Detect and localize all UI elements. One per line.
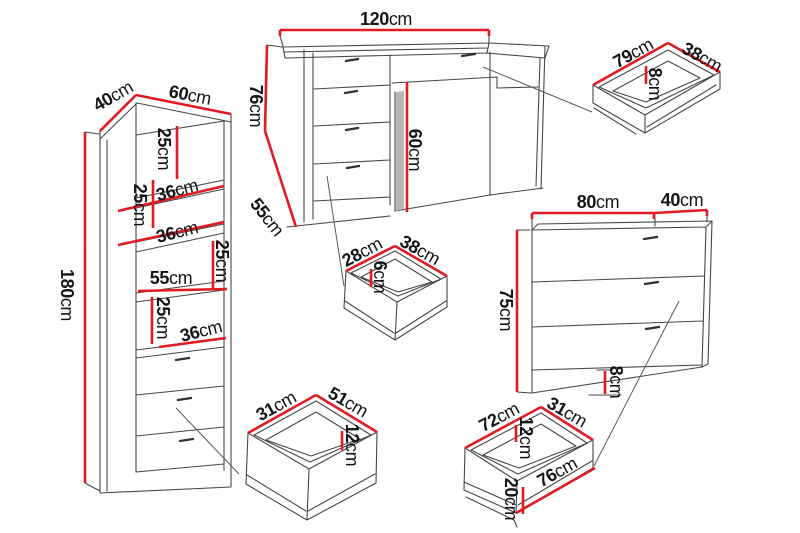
wardrobe-gap4-label: 25cm: [154, 297, 172, 339]
desk-height-label: 76cm: [247, 85, 265, 127]
chest-height-label: 75cm: [497, 289, 515, 331]
dimension-unit: cm: [130, 203, 150, 226]
dimension-unit: cm: [370, 270, 390, 293]
dimension-unit: cm: [645, 77, 665, 100]
dimension-value: 180: [57, 269, 77, 298]
furniture-dimension-diagram: 40cm 60cm 180cm 25cm 36cm 25cm 36cm 25cm…: [0, 0, 800, 533]
wardrobe-interior-width-label: 55cm: [150, 269, 192, 287]
small-drawer-height-label: 6cm: [371, 261, 389, 294]
dimension-value: 40: [661, 190, 680, 210]
dimension-unit: cm: [501, 497, 521, 520]
dimension-unit: cm: [212, 259, 232, 282]
dimension-value: 120: [360, 9, 389, 29]
dimension-value: 76: [246, 85, 266, 104]
dimension-value: 55: [150, 268, 169, 288]
wardrobe-gap2-label: 25cm: [131, 184, 149, 226]
dimension-unit: cm: [680, 190, 703, 210]
dimension-value: 20: [501, 478, 521, 497]
wardrobe-gap1-label: 25cm: [155, 128, 173, 170]
chest-drawer-front-height-label: 20cm: [502, 478, 520, 520]
dimension-value: 12: [342, 424, 362, 443]
desk-pedestal-shadow: [396, 91, 404, 211]
dimension-unit: cm: [389, 9, 412, 29]
dimension-value: 60: [405, 129, 425, 148]
dimension-value: 6: [370, 261, 390, 271]
dimension-value: 8: [606, 366, 626, 376]
dimension-value: 25: [130, 184, 150, 203]
chest-depth-label: 40cm: [661, 191, 703, 209]
wardrobe-drawer-height-label: 12cm: [343, 424, 361, 466]
dimension-unit: cm: [154, 147, 174, 170]
chest-handles: [644, 237, 659, 329]
dimension-unit: cm: [153, 316, 173, 339]
dimension-unit: cm: [496, 308, 516, 331]
chest-drawer-inner-height-label: 12cm: [517, 417, 535, 459]
dimension-value: 25: [153, 297, 173, 316]
chest-width-label: 80cm: [577, 193, 619, 211]
dimension-unit: cm: [405, 148, 425, 171]
dimension-unit: cm: [246, 104, 266, 127]
dimension-unit: cm: [342, 443, 362, 466]
dimension-value: 8: [645, 68, 665, 78]
dimension-unit: cm: [606, 375, 626, 398]
dimension-unit: cm: [169, 268, 192, 288]
dimension-value: 25: [212, 240, 232, 259]
dimension-value: 12: [516, 417, 536, 436]
leader-pedestal-to-small-drawer: [327, 176, 344, 286]
desk-knee-height-label: 60cm: [406, 129, 424, 171]
wardrobe-gap3-label: 25cm: [213, 240, 231, 282]
dimension-unit: cm: [516, 436, 536, 459]
dimension-value: 75: [496, 289, 516, 308]
desk-width-label: 120cm: [360, 10, 412, 28]
dimension-unit: cm: [186, 85, 213, 109]
dimension-unit: cm: [596, 192, 619, 212]
wardrobe-handles: [176, 358, 193, 441]
dimension-value: 25: [154, 128, 174, 147]
leader-desk-to-drawer: [483, 67, 592, 112]
wardrobe-height-label: 180cm: [58, 269, 76, 321]
chest-plinth-height-label: 8cm: [607, 366, 625, 399]
dimension-value: 80: [577, 192, 596, 212]
desk-drawer-height-label: 8cm: [646, 68, 664, 101]
dimension-unit: cm: [57, 298, 77, 321]
